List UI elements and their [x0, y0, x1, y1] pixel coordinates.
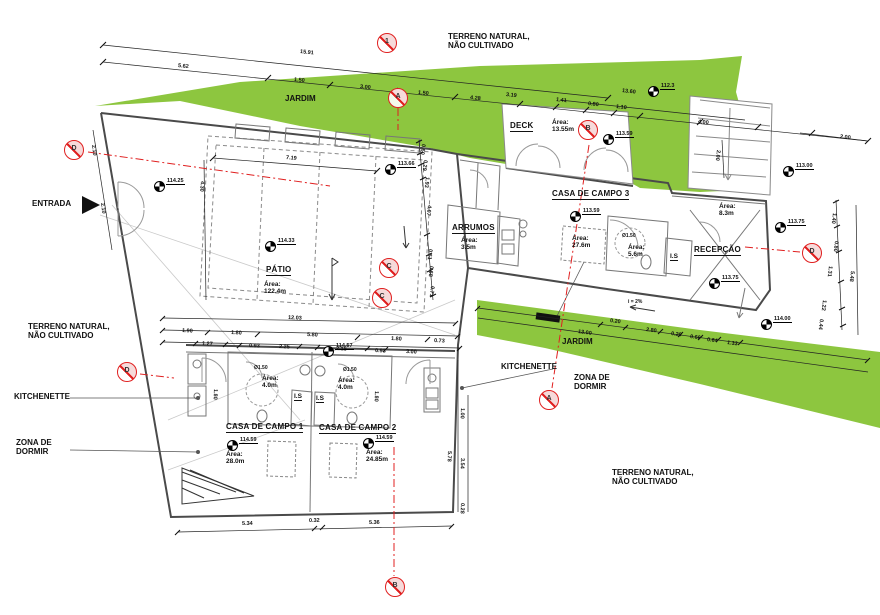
- elevation-target-icon: [709, 278, 720, 289]
- section-marker-icon: C: [372, 288, 392, 308]
- elevation-target-icon: [363, 438, 374, 449]
- dimension-label: 0.44: [817, 319, 824, 330]
- elevation-value: 113.75: [787, 219, 806, 226]
- elevation-value: 113.59: [615, 131, 634, 138]
- bath3-area: Área: 5.6m: [628, 244, 645, 259]
- zona-dormir-label-right: ZONA DE DORMIR: [574, 373, 610, 391]
- elevation-marker: 113.75: [775, 222, 785, 232]
- elevation-value: 114.59: [239, 437, 258, 444]
- elevation-marker: 114.33: [265, 241, 275, 251]
- dimension-label: 1.40: [830, 213, 837, 224]
- dimension-label: 1.31: [826, 266, 833, 277]
- zona-dormir-label-left: ZONA DE DORMIR: [16, 438, 52, 456]
- slope-annotation: i = 2%: [628, 300, 642, 306]
- elevation-marker: 114.00: [761, 319, 771, 329]
- elevation-target-icon: [227, 440, 238, 451]
- elevation-marker: 114.57: [323, 346, 333, 356]
- bath3-diameter: Ø1.50: [622, 234, 636, 240]
- dimension-label: 2.10: [99, 203, 106, 214]
- dimension-label: 1.93: [423, 177, 430, 188]
- elevation-value: 114.57: [335, 343, 354, 350]
- dimension-label: 3.00: [360, 84, 371, 91]
- elevation-marker: 113.59: [570, 211, 580, 221]
- elevation-marker: 114.59: [363, 438, 373, 448]
- dimension-label: 12.03: [288, 315, 302, 322]
- dimension-label: 1.27: [202, 341, 213, 348]
- elevation-target-icon: [265, 241, 276, 252]
- patio-area: Área: 122.4m: [264, 281, 286, 296]
- dimension-label: 3.19: [506, 92, 517, 99]
- jardim-label-mid: JARDIM: [562, 337, 593, 346]
- section-marker-icon: D: [64, 140, 84, 160]
- section-marker-icon: B: [578, 120, 598, 140]
- deck-area: Área: 13.55m: [552, 119, 574, 134]
- dimension-label: 1.80: [231, 330, 242, 337]
- dimension-label: 0.80: [588, 101, 599, 108]
- section-letter: A: [389, 93, 407, 100]
- casa2-label: CASA DE CAMPO 2: [319, 423, 396, 434]
- dimension-label: 2.00: [840, 134, 851, 141]
- casa1-area: Área: 28.0m: [226, 451, 244, 466]
- casa1-label: CASA DE CAMPO 1: [226, 422, 303, 433]
- dimension-label: 5.80: [307, 332, 318, 339]
- section-marker-icon: D: [802, 243, 822, 263]
- section-letter: D: [118, 367, 136, 374]
- dimension-label: 1.22: [820, 300, 827, 311]
- dimension-label: 0.60: [419, 144, 426, 155]
- section-letter: D: [803, 248, 821, 255]
- elevation-marker: 114.25: [154, 181, 164, 191]
- bath1-area: Área: 4.0m: [262, 375, 279, 390]
- elevation-value: 114.33: [277, 238, 296, 245]
- site-plan-drawing: [0, 0, 880, 615]
- dimension-label: 0.28: [459, 503, 465, 514]
- dimension-label: 0.29: [421, 160, 428, 171]
- section-marker-icon: B: [385, 577, 405, 597]
- elevation-value: 114.59: [375, 435, 394, 442]
- elevation-target-icon: [761, 319, 772, 330]
- dimension-label: 1.80: [373, 391, 379, 402]
- dimension-label: 5.48: [848, 271, 855, 282]
- terrain-label-top: TERRENO NATURAL, NÃO CULTIVADO: [448, 32, 530, 50]
- dimension-label: 2.00: [714, 150, 721, 161]
- elevation-target-icon: [648, 86, 659, 97]
- arrumos-label: ARRUMOS: [452, 223, 495, 234]
- dimension-label: 0.66: [690, 334, 701, 341]
- dimension-label: 5.62: [178, 63, 189, 70]
- dimension-label: 2.80: [646, 327, 657, 334]
- dimension-label: 1.00: [459, 408, 465, 419]
- dimension-label: 5.36: [369, 520, 380, 526]
- bath1-diameter: Ø1.50: [254, 366, 268, 372]
- section-marker-icon: A: [539, 390, 559, 410]
- entrada-label: ENTRADA: [32, 199, 71, 208]
- dimension-label: 4.07: [425, 205, 432, 216]
- jardim-label-top: JARDIM: [285, 94, 316, 103]
- elevation-marker: 113.59: [603, 134, 613, 144]
- dimension-label: 0.93: [375, 348, 386, 355]
- elevation-target-icon: [570, 211, 581, 222]
- dimension-label: 1.50: [418, 90, 429, 97]
- bath2-area: Área: 4.0m: [338, 377, 355, 392]
- elevation-value: 113.59: [582, 208, 601, 215]
- dimension-label: 4.28: [470, 95, 481, 102]
- is1-label: I.S: [294, 393, 302, 401]
- section-letter: 1: [378, 38, 396, 45]
- dimension-label: 1.90: [182, 328, 193, 335]
- dimension-label: 7.19: [286, 155, 297, 162]
- section-letter: A: [540, 395, 558, 402]
- elevation-marker: 113.66: [385, 164, 395, 174]
- terrain-label-left: TERRENO NATURAL, NÃO CULTIVADO: [28, 322, 110, 340]
- elevation-value: 113.66: [397, 161, 416, 168]
- elevation-value: 112.3: [660, 83, 675, 90]
- section-letter: B: [386, 582, 404, 589]
- dimension-label: 1.50: [294, 77, 305, 84]
- elevation-target-icon: [323, 346, 334, 357]
- deck-label: DECK: [510, 121, 533, 132]
- dimension-label: 1.10: [616, 104, 627, 111]
- dimension-label: 1.41: [556, 97, 567, 104]
- section-letter: B: [579, 125, 597, 132]
- dimension-label: 0.71: [428, 286, 435, 297]
- elevation-value: 114.25: [166, 178, 185, 185]
- dimension-label: 0.68: [427, 266, 434, 277]
- dimension-label: 5.34: [242, 521, 253, 527]
- section-marker-icon: C: [379, 258, 399, 278]
- dimension-label: 0.32: [309, 518, 320, 524]
- elevation-marker: 113.00: [783, 166, 793, 176]
- dimension-label: 2.25: [279, 344, 290, 351]
- dimension-label: 4.30: [198, 181, 205, 192]
- elevation-target-icon: [783, 166, 794, 177]
- elevation-target-icon: [385, 164, 396, 175]
- elevation-marker: 113.75: [709, 278, 719, 288]
- section-letter: C: [373, 293, 391, 300]
- casa3-label: CASA DE CAMPO 3: [552, 189, 629, 200]
- recepcao-label: RECEPÇÃO: [694, 245, 741, 256]
- is2-label: I.S: [316, 395, 324, 403]
- dimension-label: 4.00: [698, 119, 709, 126]
- entrada-arrow: [82, 196, 100, 214]
- terrain-label-bottom: TERRENO NATURAL, NÃO CULTIVADO: [612, 468, 694, 486]
- elevation-value: 114.00: [773, 316, 792, 323]
- dimension-label: 0.20: [671, 331, 682, 338]
- dimension-label: 0.93: [249, 343, 260, 350]
- dimension-label: 0.73: [434, 338, 445, 345]
- elevation-target-icon: [154, 181, 165, 192]
- elevation-marker: 114.59: [227, 440, 237, 450]
- casa2-area: Área: 24.85m: [366, 449, 388, 464]
- site-plan-canvas: TERRENO NATURAL, NÃO CULTIVADO JARDIM DE…: [0, 0, 880, 615]
- section-marker-icon: D: [117, 362, 137, 382]
- kitchenette-label-right: KITCHENETTE: [501, 362, 557, 371]
- dimension-label: 3.00: [406, 349, 417, 356]
- dimension-label: 1.33: [727, 340, 738, 347]
- dimension-label: 3.54: [459, 458, 465, 469]
- elevation-target-icon: [775, 222, 786, 233]
- section-marker-icon: A: [388, 88, 408, 108]
- section-marker-icon: 1: [377, 33, 397, 53]
- section-letter: D: [65, 145, 83, 152]
- elevation-value: 113.75: [721, 275, 740, 282]
- dimension-label: 2.10: [90, 145, 97, 156]
- elevation-target-icon: [603, 134, 614, 145]
- recepcao-area: Área: 8.3m: [719, 203, 736, 218]
- elevation-value: 113.00: [795, 163, 814, 170]
- patio-label: PÁTIO: [266, 265, 291, 276]
- dimension-label: 1.80: [212, 389, 218, 400]
- dimension-label: 5.78: [446, 451, 452, 462]
- section-letter: C: [380, 263, 398, 270]
- arrumos-area: Área: 3.5m: [461, 237, 478, 252]
- dimension-label: 1.80: [391, 336, 402, 343]
- bath2-diameter: Ø1.50: [343, 368, 357, 374]
- is3-label: I.S: [670, 253, 678, 261]
- elevation-marker: 112.3: [648, 86, 658, 96]
- casa3-area: Área: 27.6m: [572, 235, 590, 250]
- dimension-label: 0.80: [832, 241, 839, 252]
- dimension-label: 0.64: [707, 337, 718, 344]
- dimension-label: 15.91: [300, 49, 314, 56]
- dimension-label: 0.20: [610, 318, 621, 325]
- kitchenette-label-left: KITCHENETTE: [14, 392, 70, 401]
- dimension-label: 0.61: [426, 249, 433, 260]
